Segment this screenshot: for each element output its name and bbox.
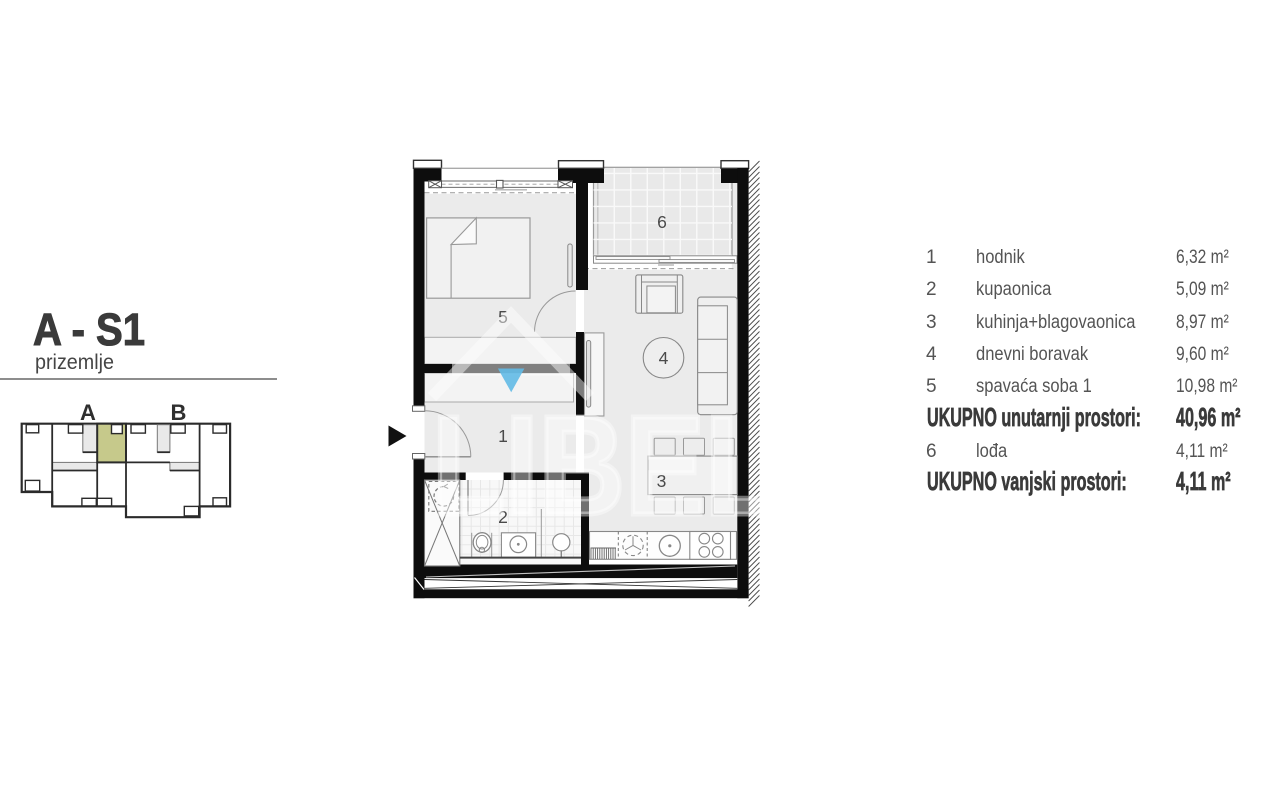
svg-text:A: A: [80, 400, 96, 425]
svg-text:B: B: [171, 400, 187, 425]
svg-text:6: 6: [657, 212, 667, 232]
svg-text:4: 4: [659, 348, 669, 368]
svg-text:LIBEL: LIBEL: [432, 387, 778, 544]
